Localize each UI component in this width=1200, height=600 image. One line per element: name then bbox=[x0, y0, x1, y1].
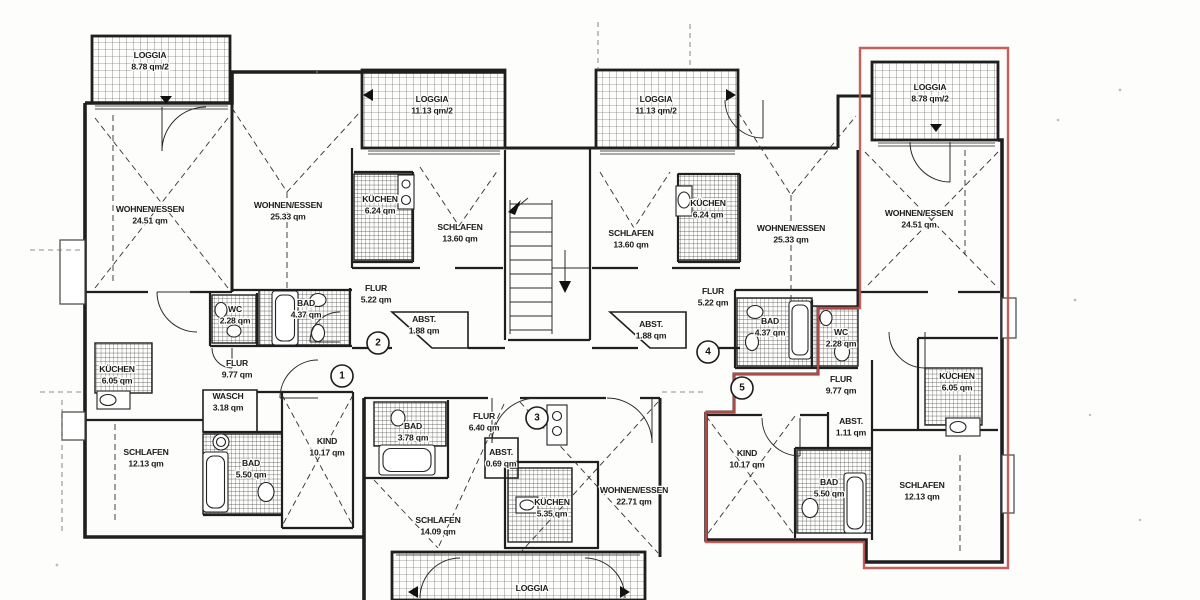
svg-text:5.22 qm: 5.22 qm bbox=[698, 298, 729, 308]
window-bay-left-upper bbox=[60, 240, 85, 304]
unit-number-3: 3 bbox=[526, 407, 548, 429]
svg-text:25.33 qm: 25.33 qm bbox=[270, 212, 306, 222]
svg-text:SCHLAFEN: SCHLAFEN bbox=[608, 228, 653, 238]
svg-text:24.51 qm: 24.51 qm bbox=[132, 216, 168, 226]
stove-b bbox=[398, 175, 414, 209]
svg-text:SCHLAFEN: SCHLAFEN bbox=[437, 222, 482, 232]
window-bay-left-lower bbox=[62, 412, 85, 440]
room-label-flur-a: FLUR9.77 qm bbox=[222, 358, 253, 380]
sink-e-bath bbox=[391, 410, 405, 426]
svg-text:KÜCHEN: KÜCHEN bbox=[362, 194, 398, 204]
svg-text:LOGGIA: LOGGIA bbox=[516, 583, 549, 593]
svg-text:KÜCHEN: KÜCHEN bbox=[99, 364, 135, 374]
svg-text:BAD: BAD bbox=[761, 316, 779, 326]
staircase bbox=[508, 198, 590, 334]
unit-number-5: 5 bbox=[731, 377, 753, 399]
svg-text:2: 2 bbox=[375, 338, 381, 349]
room-label-kueche-a: KÜCHEN6.05 qm bbox=[99, 364, 135, 386]
svg-text:25.33 qm: 25.33 qm bbox=[773, 235, 809, 245]
svg-text:WC: WC bbox=[228, 304, 242, 314]
svg-text:2.28 qm: 2.28 qm bbox=[826, 339, 857, 349]
stair-down-arrow-icon bbox=[559, 281, 571, 293]
svg-text:9.77 qm: 9.77 qm bbox=[826, 386, 857, 396]
svg-text:3.18 qm: 3.18 qm bbox=[213, 403, 244, 413]
toilet-a2 bbox=[258, 483, 274, 502]
svg-text:1.11 qm: 1.11 qm bbox=[836, 428, 867, 438]
room-label-schlafen-b: SCHLAFEN13.60 qm bbox=[437, 222, 482, 244]
svg-text:4: 4 bbox=[705, 347, 711, 358]
unit-number-2: 2 bbox=[367, 332, 389, 354]
svg-text:WOHNEN/ESSEN: WOHNEN/ESSEN bbox=[600, 485, 668, 495]
svg-text:5.50 qm: 5.50 qm bbox=[236, 470, 267, 480]
room-label-schlafen-c: SCHLAFEN13.60 qm bbox=[608, 228, 653, 250]
svg-text:3.78 qm: 3.78 qm bbox=[398, 433, 429, 443]
svg-text:5.35 qm: 5.35 qm bbox=[537, 509, 568, 519]
room-label-wohnen-b: WOHNEN/ESSEN25.33 qm bbox=[254, 200, 322, 222]
svg-text:BAD: BAD bbox=[404, 421, 422, 431]
svg-text:ABST.: ABST. bbox=[412, 314, 436, 324]
svg-text:FLUR: FLUR bbox=[830, 374, 853, 384]
svg-text:11.13 qm/2: 11.13 qm/2 bbox=[635, 106, 677, 116]
svg-text:KIND: KIND bbox=[317, 436, 337, 446]
sink-wc-d bbox=[820, 311, 832, 326]
svg-text:1.88 qm: 1.88 qm bbox=[409, 326, 440, 336]
room-label-flur-d: FLUR9.77 qm bbox=[826, 374, 857, 396]
svg-text:0.69 qm: 0.69 qm bbox=[486, 459, 517, 469]
svg-text:13.60 qm: 13.60 qm bbox=[442, 234, 478, 244]
svg-text:FLUR: FLUR bbox=[702, 286, 725, 296]
svg-text:11.13 qm/2: 11.13 qm/2 bbox=[411, 106, 453, 116]
room-label-loggia-c: LOGGIA11.13 qm/2 bbox=[635, 94, 677, 116]
room-label-schlafen-e: SCHLAFEN14.09 qm bbox=[415, 515, 460, 537]
room-label-schlafen-d: SCHLAFEN12.13 qm bbox=[899, 480, 944, 502]
svg-text:BAD: BAD bbox=[297, 298, 315, 308]
svg-text:WOHNEN/ESSEN: WOHNEN/ESSEN bbox=[116, 204, 184, 214]
svg-text:9.77 qm: 9.77 qm bbox=[222, 370, 253, 380]
room-label-kueche-e: KÜCHEN5.35 qm bbox=[534, 497, 570, 519]
room-label-abst-c: ABST.1.88 qm bbox=[636, 319, 667, 341]
svg-text:SCHLAFEN: SCHLAFEN bbox=[899, 480, 944, 490]
room-label-abst-e: ABST.0.69 qm bbox=[486, 447, 517, 469]
svg-text:10.17 qm: 10.17 qm bbox=[309, 448, 345, 458]
svg-text:LOGGIA: LOGGIA bbox=[914, 82, 947, 92]
svg-text:KÜCHEN: KÜCHEN bbox=[939, 371, 975, 381]
svg-text:1: 1 bbox=[339, 371, 345, 382]
svg-text:FLUR: FLUR bbox=[365, 283, 388, 293]
svg-text:2.28 qm: 2.28 qm bbox=[220, 316, 251, 326]
room-label-kind-a: KIND10.17 qm bbox=[309, 436, 345, 458]
room-label-flur-c: FLUR5.22 qm bbox=[698, 286, 729, 308]
svg-text:1.88 qm: 1.88 qm bbox=[636, 331, 667, 341]
svg-text:WC: WC bbox=[834, 327, 848, 337]
svg-text:LOGGIA: LOGGIA bbox=[134, 50, 167, 60]
floor-plan-drawing: LOGGIA8.78 qm/2 WOHNEN/ESSEN24.51 qm KÜC… bbox=[0, 0, 1200, 600]
room-label-kueche-c: KÜCHEN6.24 qm bbox=[690, 198, 726, 220]
svg-text:5.50 qm: 5.50 qm bbox=[814, 489, 845, 499]
unit-number-4: 4 bbox=[697, 341, 719, 363]
svg-text:KIND: KIND bbox=[737, 448, 757, 458]
bathtub-a2 bbox=[203, 452, 228, 512]
floor-plan-scan: LOGGIA8.78 qm/2 WOHNEN/ESSEN24.51 qm KÜC… bbox=[0, 0, 1200, 600]
bathtub-e bbox=[379, 445, 435, 475]
room-label-wasch-a: WASCH3.18 qm bbox=[213, 391, 244, 413]
svg-text:KÜCHEN: KÜCHEN bbox=[534, 497, 570, 507]
svg-text:KÜCHEN: KÜCHEN bbox=[690, 198, 726, 208]
room-label-wohnen-e: WOHNEN/ESSEN22.71 qm bbox=[600, 485, 668, 507]
svg-text:14.09 qm: 14.09 qm bbox=[420, 527, 456, 537]
svg-text:SCHLAFEN: SCHLAFEN bbox=[123, 447, 168, 457]
svg-text:FLUR: FLUR bbox=[226, 358, 249, 368]
svg-text:24.51 qm: 24.51 qm bbox=[901, 220, 937, 230]
bathtub-d1 bbox=[789, 301, 811, 359]
room-label-abst-b: ABST.1.88 qm bbox=[409, 314, 440, 336]
svg-text:ABST.: ABST. bbox=[639, 319, 663, 329]
svg-text:6.05 qm: 6.05 qm bbox=[102, 376, 133, 386]
svg-text:6.24 qm: 6.24 qm bbox=[693, 210, 724, 220]
room-label-flur-b: FLUR5.22 qm bbox=[361, 283, 392, 305]
room-label-loggia-b: LOGGIA11.13 qm/2 bbox=[411, 94, 453, 116]
room-label-loggia-e: LOGGIA bbox=[516, 583, 549, 593]
room-label-abst-d: ABST.1.11 qm bbox=[836, 416, 867, 438]
svg-text:12.13 qm: 12.13 qm bbox=[128, 459, 164, 469]
svg-text:3: 3 bbox=[534, 413, 540, 424]
svg-text:12.13 qm: 12.13 qm bbox=[904, 492, 940, 502]
svg-text:SCHLAFEN: SCHLAFEN bbox=[415, 515, 460, 525]
svg-text:WOHNEN/ESSEN: WOHNEN/ESSEN bbox=[757, 223, 825, 233]
room-label-loggia-d: LOGGIA8.78 qm/2 bbox=[911, 82, 949, 104]
svg-text:5: 5 bbox=[739, 383, 745, 394]
stove-e bbox=[547, 405, 567, 445]
svg-text:WOHNEN/ESSEN: WOHNEN/ESSEN bbox=[254, 200, 322, 210]
svg-text:8.78 qm/2: 8.78 qm/2 bbox=[911, 94, 949, 104]
svg-text:LOGGIA: LOGGIA bbox=[640, 94, 673, 104]
room-label-wohnen-d: WOHNEN/ESSEN24.51 qm bbox=[885, 208, 953, 230]
svg-text:5.22 qm: 5.22 qm bbox=[361, 295, 392, 305]
kitchen-sink-a bbox=[97, 391, 130, 409]
svg-text:LOGGIA: LOGGIA bbox=[416, 94, 449, 104]
washer-a bbox=[213, 434, 229, 450]
svg-text:FLUR: FLUR bbox=[473, 411, 496, 421]
svg-text:BAD: BAD bbox=[820, 477, 838, 487]
toilet-d2 bbox=[802, 499, 818, 518]
room-label-wohnen-a: WOHNEN/ESSEN24.51 qm bbox=[116, 204, 184, 226]
svg-text:8.78 qm/2: 8.78 qm/2 bbox=[131, 62, 169, 72]
svg-text:6.40 qm: 6.40 qm bbox=[469, 423, 500, 433]
svg-text:6.24 qm: 6.24 qm bbox=[365, 206, 396, 216]
room-label-loggia-a: LOGGIA8.78 qm/2 bbox=[131, 50, 169, 72]
svg-text:WASCH: WASCH bbox=[213, 391, 244, 401]
svg-text:22.71 qm: 22.71 qm bbox=[616, 497, 652, 507]
room-label-kueche-d: KÜCHEN6.05 qm bbox=[939, 371, 975, 393]
kitchen-sink-d bbox=[946, 418, 980, 436]
room-label-wohnen-c: WOHNEN/ESSEN25.33 qm bbox=[757, 223, 825, 245]
svg-text:ABST.: ABST. bbox=[839, 416, 863, 426]
unit-number-1: 1 bbox=[331, 365, 353, 387]
room-label-schlafen-a: SCHLAFEN12.13 qm bbox=[123, 447, 168, 469]
room-label-kind-d: KIND10.17 qm bbox=[729, 448, 765, 470]
svg-text:4.37 qm: 4.37 qm bbox=[291, 310, 322, 320]
svg-text:BAD: BAD bbox=[242, 458, 260, 468]
bathtub-d2 bbox=[844, 473, 866, 533]
svg-text:13.60 qm: 13.60 qm bbox=[613, 240, 649, 250]
room-label-kueche-b: KÜCHEN6.24 qm bbox=[362, 194, 398, 216]
svg-text:10.17 qm: 10.17 qm bbox=[729, 460, 765, 470]
svg-text:WOHNEN/ESSEN: WOHNEN/ESSEN bbox=[885, 208, 953, 218]
svg-text:6.05 qm: 6.05 qm bbox=[942, 383, 973, 393]
room-label-flur-e: FLUR6.40 qm bbox=[469, 411, 500, 433]
svg-text:4.37 qm: 4.37 qm bbox=[755, 328, 786, 338]
svg-text:ABST.: ABST. bbox=[489, 447, 513, 457]
toilet-wc-a bbox=[227, 325, 241, 337]
